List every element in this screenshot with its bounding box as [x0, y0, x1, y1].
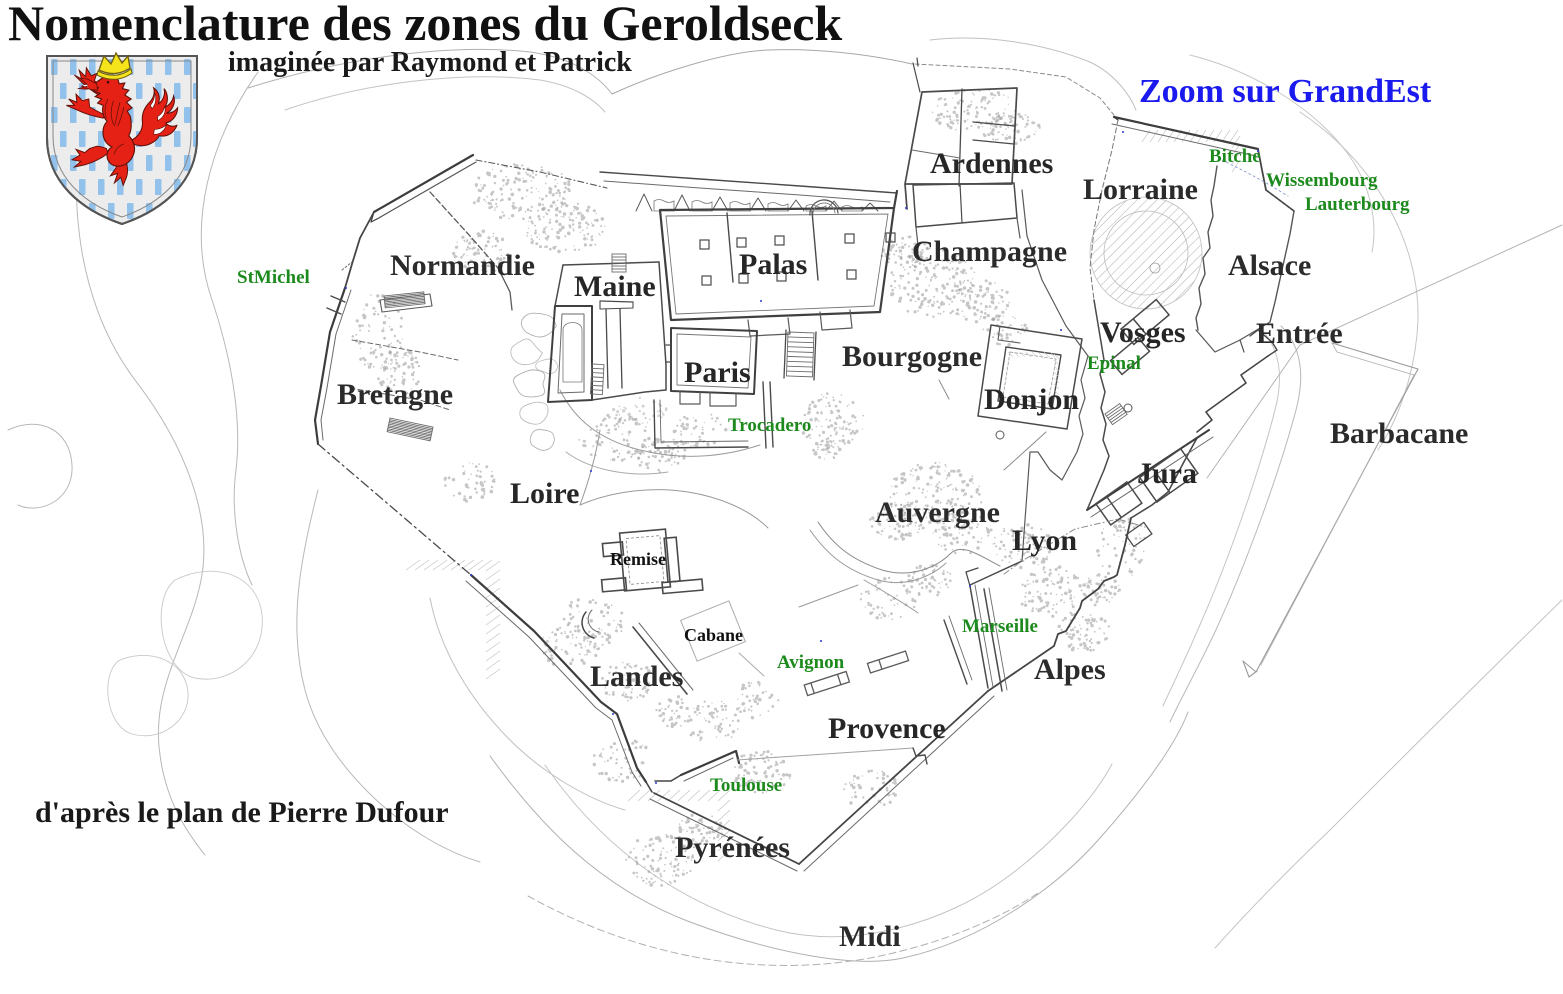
svg-text:Lorraine: Lorraine — [1083, 173, 1198, 206]
svg-text:Remise: Remise — [610, 549, 666, 569]
svg-text:Alsace: Alsace — [1228, 249, 1311, 282]
svg-text:Normandie: Normandie — [390, 249, 535, 282]
svg-text:Auvergne: Auvergne — [875, 496, 1000, 529]
svg-text:Loire: Loire — [510, 477, 579, 510]
svg-text:Wissembourg: Wissembourg — [1266, 170, 1378, 191]
svg-text:Marseille: Marseille — [962, 616, 1038, 637]
svg-text:Maine: Maine — [574, 270, 656, 303]
svg-text:Jura: Jura — [1137, 457, 1197, 490]
svg-text:Champagne: Champagne — [912, 235, 1067, 268]
svg-text:Epinal: Epinal — [1087, 353, 1141, 374]
svg-text:Toulouse: Toulouse — [710, 775, 782, 796]
svg-text:Bitche: Bitche — [1209, 146, 1261, 167]
svg-text:Pyrénées: Pyrénées — [675, 831, 790, 864]
svg-text:Nomenclature des zones du Gero: Nomenclature des zones du Geroldseck — [8, 0, 842, 51]
svg-text:Entrée: Entrée — [1256, 317, 1343, 350]
svg-text:Landes: Landes — [590, 660, 683, 693]
svg-text:Cabane: Cabane — [684, 625, 743, 645]
svg-text:Lyon: Lyon — [1012, 524, 1077, 557]
svg-text:Ardennes: Ardennes — [930, 147, 1053, 180]
svg-text:Midi: Midi — [839, 920, 901, 953]
svg-text:Bourgogne: Bourgogne — [842, 340, 982, 373]
svg-text:d'après le plan de Pierre Dufo: d'après le plan de Pierre Dufour — [35, 796, 449, 829]
svg-text:Palas: Palas — [739, 248, 807, 281]
svg-text:Vosges: Vosges — [1100, 316, 1186, 349]
svg-text:Provence: Provence — [828, 712, 946, 745]
svg-text:Trocadero: Trocadero — [728, 415, 811, 436]
svg-text:Bretagne: Bretagne — [337, 378, 453, 411]
svg-text:Barbacane: Barbacane — [1330, 417, 1468, 450]
svg-text:Avignon: Avignon — [777, 652, 845, 673]
svg-text:Paris: Paris — [684, 356, 751, 389]
svg-text:Alpes: Alpes — [1034, 653, 1106, 686]
svg-text:Zoom sur GrandEst: Zoom sur GrandEst — [1139, 73, 1432, 110]
svg-text:StMichel: StMichel — [237, 267, 310, 288]
svg-text:imaginée par Raymond et Patric: imaginée par Raymond et Patrick — [228, 47, 632, 78]
svg-text:Donjon: Donjon — [984, 383, 1079, 416]
svg-text:Lauterbourg: Lauterbourg — [1305, 194, 1410, 215]
